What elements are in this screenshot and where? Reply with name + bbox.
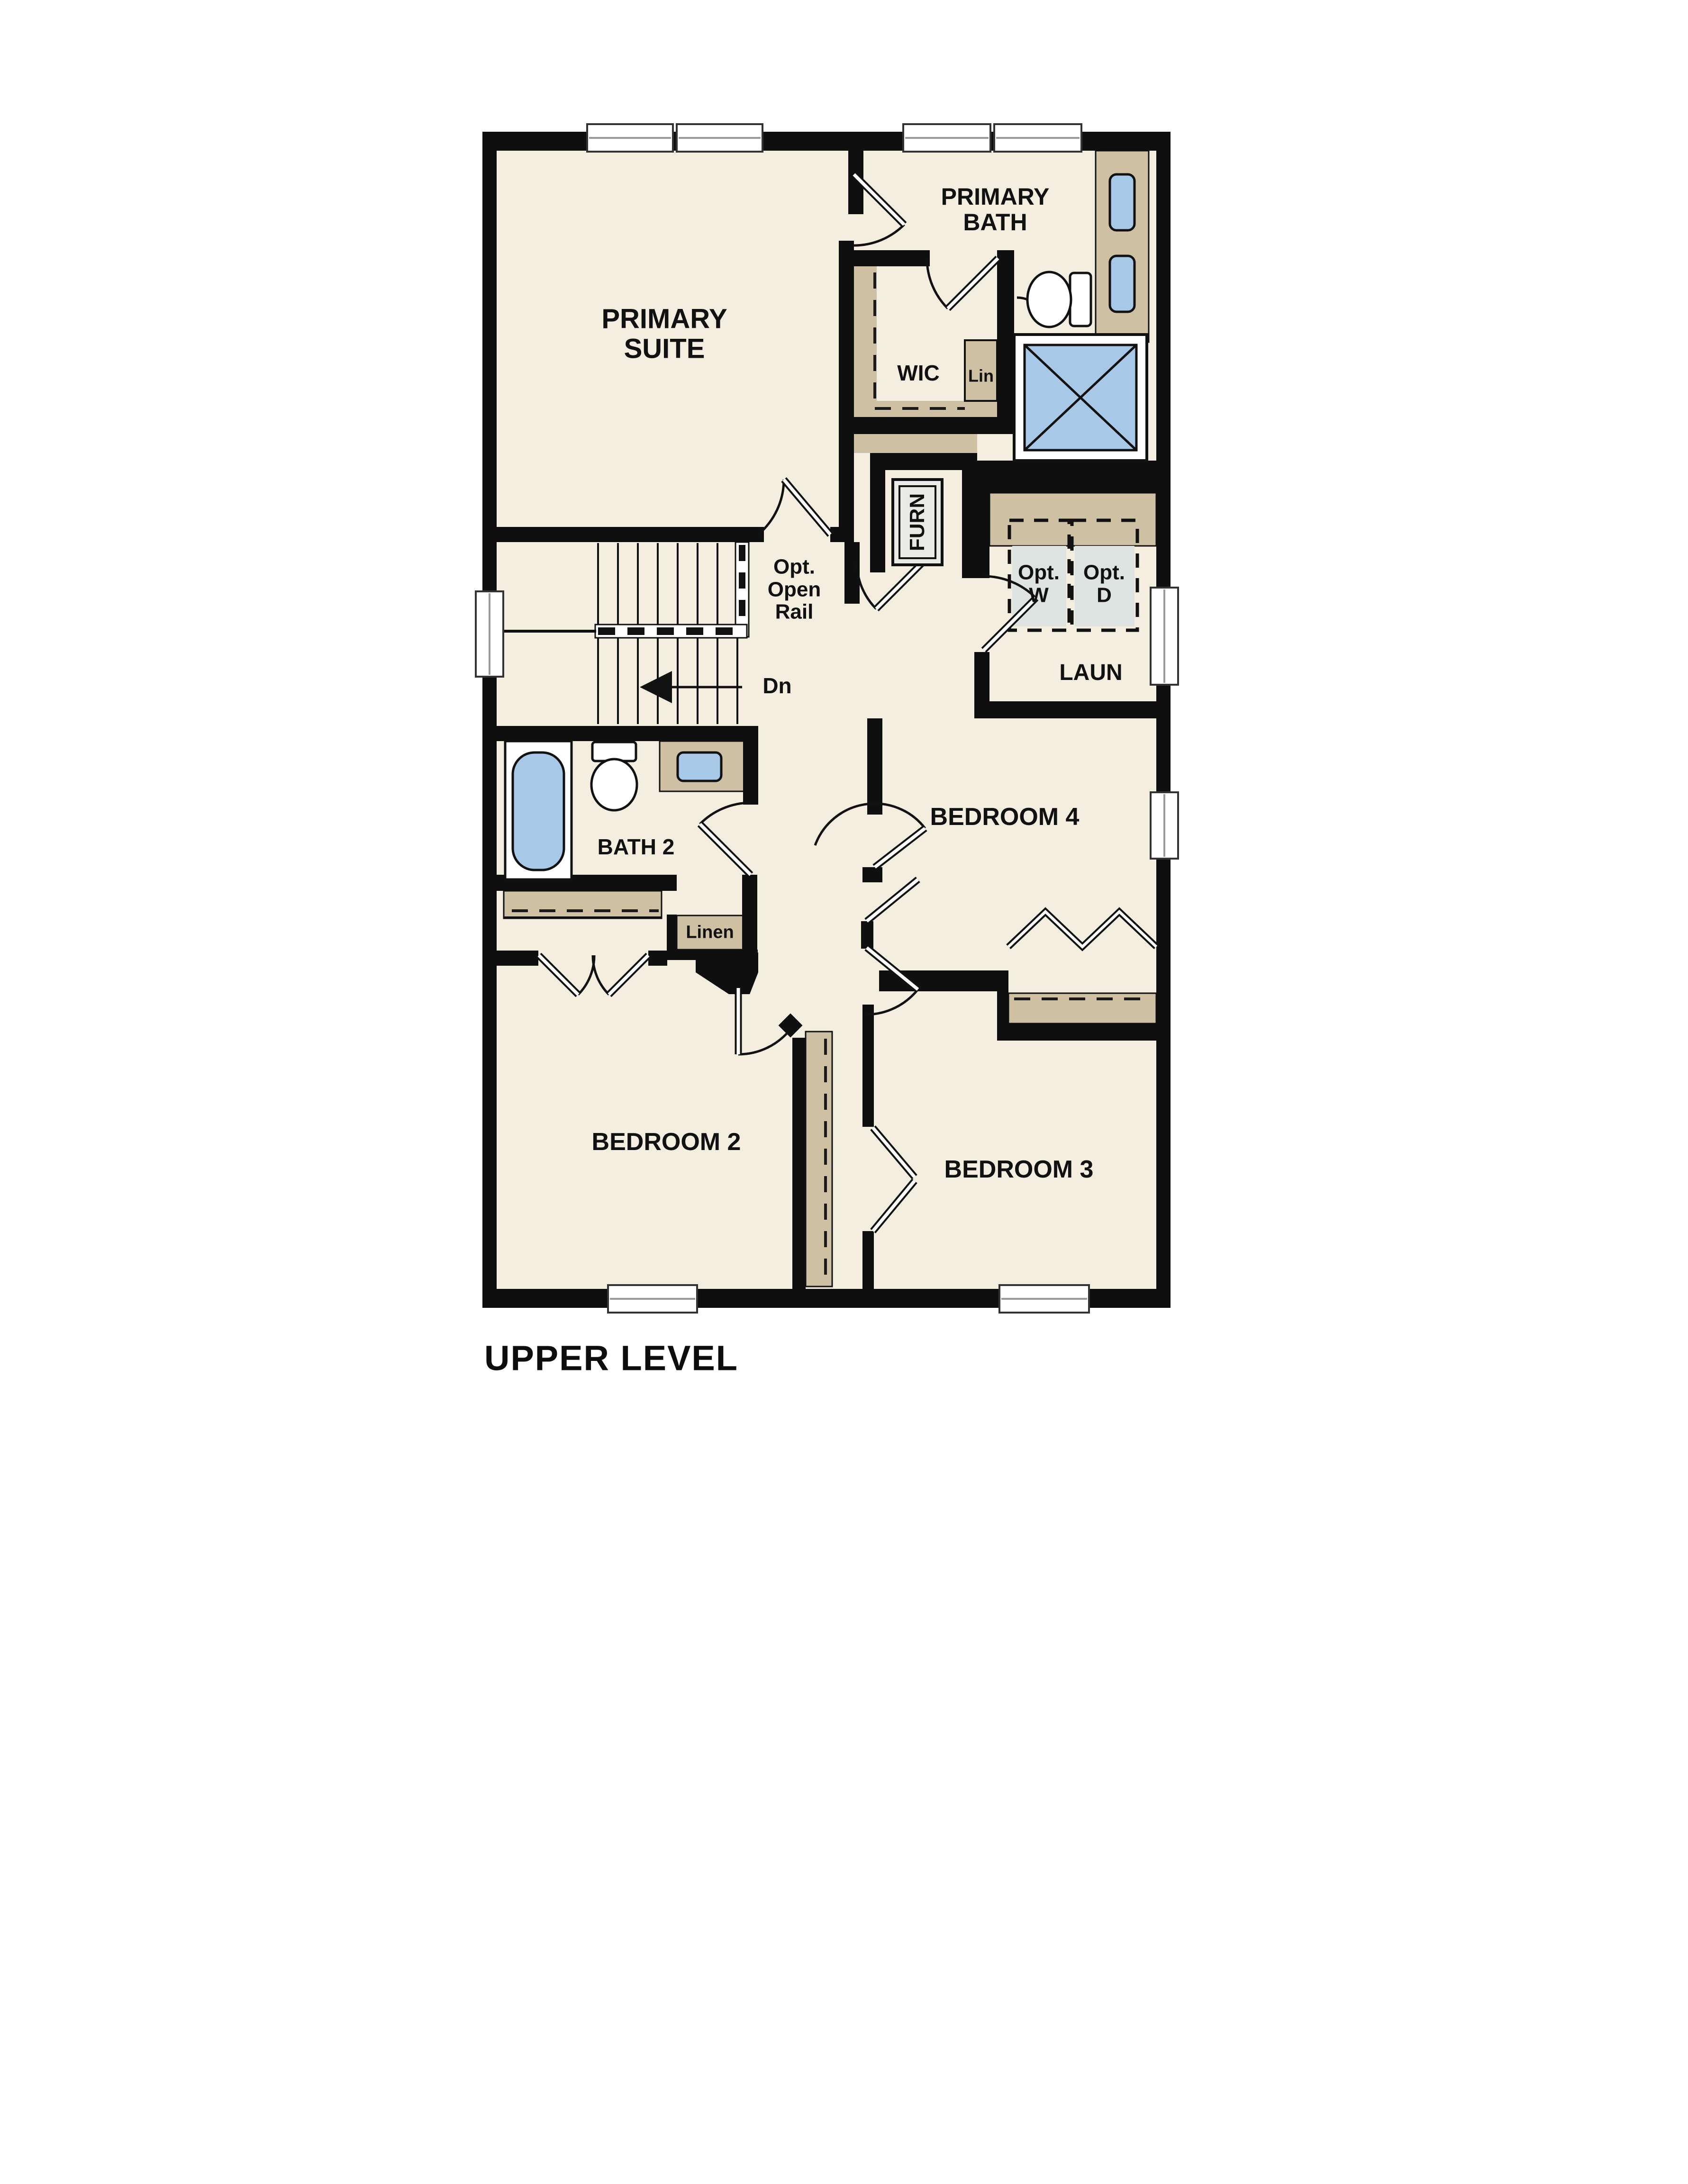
wall-exterior-left	[482, 132, 497, 1308]
label-wic: WIC	[897, 362, 939, 385]
label-primary-bath: PRIMARY BATH	[941, 184, 1050, 235]
primary-toilet	[1027, 272, 1091, 327]
primary-suite-line2: SUITE	[601, 334, 727, 364]
label-opt-dryer: Opt. D	[1083, 561, 1125, 606]
label-primary-suite: PRIMARY SUITE	[601, 304, 727, 363]
label-dn: Dn	[762, 674, 791, 698]
bath2-sink	[678, 752, 721, 781]
bath2-toilet	[591, 742, 637, 810]
open-rail-line3: Rail	[768, 601, 821, 624]
label-opt-washer: Opt. W	[1018, 561, 1060, 606]
dryer-line1: Opt.	[1083, 561, 1125, 584]
label-laun: LAUN	[1059, 661, 1122, 685]
primary-bath-line2: BATH	[941, 209, 1050, 235]
label-linen: Linen	[686, 923, 734, 942]
floor-plan-page: PRIMARY SUITE PRIMARY BATH WIC Lin FURN …	[0, 0, 1688, 2184]
dryer-line2: D	[1083, 584, 1125, 607]
primary-bath-line1: PRIMARY	[941, 184, 1050, 209]
wic-left-shelf	[854, 266, 877, 401]
sink-1	[1110, 174, 1134, 230]
label-open-rail: Opt. Open Rail	[768, 556, 821, 624]
sink-2	[1110, 256, 1134, 312]
bath2-tub	[505, 741, 572, 879]
washer-line1: Opt.	[1018, 561, 1060, 584]
label-furn: FURN	[906, 493, 929, 551]
ledge	[853, 434, 977, 453]
open-rail-line1: Opt.	[768, 556, 821, 579]
bedroom2-closet-shelf	[504, 891, 662, 918]
label-bedroom3: BEDROOM 3	[944, 1156, 1094, 1183]
label-bedroom2: BEDROOM 2	[592, 1129, 741, 1155]
open-rail-line2: Open	[768, 578, 821, 601]
wall-exterior-right	[1156, 132, 1171, 1308]
primary-suite-line1: PRIMARY	[601, 304, 727, 334]
landing-edge-line	[497, 630, 596, 633]
shelf-edge-line	[504, 916, 662, 919]
floor-plan-drawing	[0, 0, 1688, 2184]
washer-line2: W	[1018, 584, 1060, 607]
shower	[1014, 335, 1147, 461]
label-lin: Lin	[968, 367, 994, 386]
page-title: UPPER LEVEL	[484, 1338, 738, 1378]
bedroom3-closet-shelf	[806, 1032, 832, 1287]
label-bath2: BATH 2	[598, 835, 675, 859]
label-bedroom4: BEDROOM 4	[930, 804, 1080, 830]
